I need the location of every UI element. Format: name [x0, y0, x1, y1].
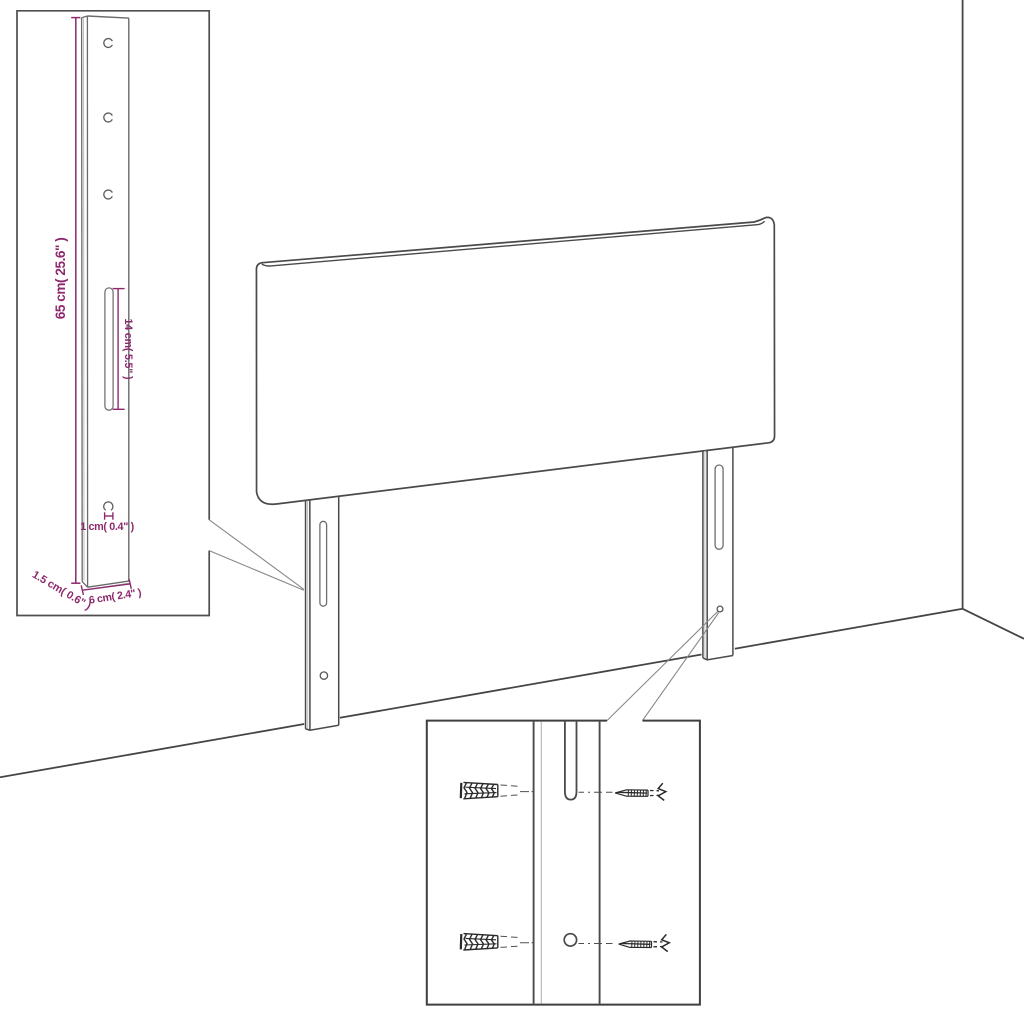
svg-text:1 cm( 0.4" ): 1 cm( 0.4" ) — [80, 521, 134, 533]
svg-text:14 cm( 5.5" ): 14 cm( 5.5" ) — [122, 319, 134, 380]
svg-text:65 cm( 25.6" ): 65 cm( 25.6" ) — [53, 237, 68, 319]
svg-text:6 cm( 2.4" ): 6 cm( 2.4" ) — [88, 587, 143, 607]
